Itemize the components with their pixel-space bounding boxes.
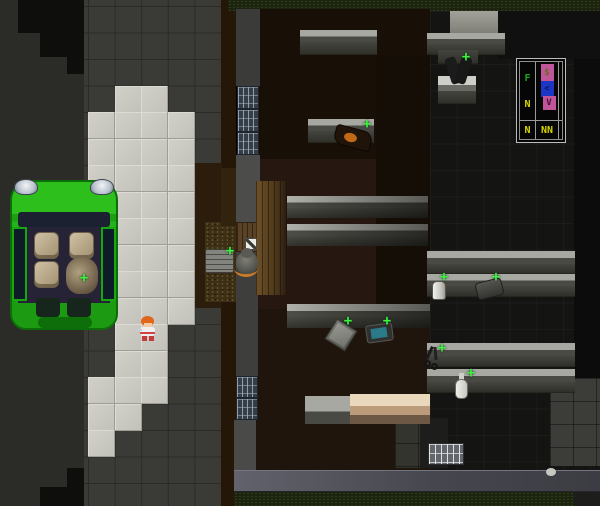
pavement-light-tile [115,298,142,325]
building-corner-dark-se [574,492,600,506]
pavement-light-tile [88,377,115,404]
pavement-light-tile [141,192,168,219]
game-viewport[interactable]: ++++++++++ [0,0,600,506]
car-seat[interactable] [34,232,59,259]
pavement-light-tile [141,351,168,378]
item-small-white[interactable] [546,468,556,476]
shelf-front [300,42,377,55]
car-rear-bumper [38,317,92,328]
zombie-sprite-head[interactable] [241,248,253,258]
item-highlight-plus[interactable]: + [460,51,472,63]
player-leg [149,336,154,341]
shelf-row [427,369,575,382]
minimap-symbol-f: F [524,73,530,84]
minimap-left-column: F N [520,62,536,120]
minimap-symbol-dollar: $ [544,68,549,78]
pavement-light-tile [168,298,195,325]
pavement-light-tile [141,245,168,272]
car-seat[interactable] [69,232,94,259]
minimap-block-pink-top: $ [541,64,554,82]
game-screen: ++++++++++ F N $ < V [0,0,600,506]
pavement-light-tile [141,86,168,113]
pavement-light-tile [115,377,142,404]
item-highlight-plus[interactable]: + [342,315,354,327]
pavement-light-tile [141,112,168,139]
pavement-light-tile [115,112,142,139]
minimap-block-pink-bottom: V [543,96,556,110]
counter-tan [350,394,430,424]
building-floor-dark-strip [376,55,430,310]
window-west [236,376,258,398]
pavement-light-tile [115,351,142,378]
car-trunk-inset [67,298,91,317]
pavement-light-tile [115,245,142,272]
pavement-light-tile [115,86,142,113]
pavement-light-tile [168,218,195,245]
minimap-symbol-n-bottom: N [520,121,536,139]
wall-south [234,470,600,492]
shelf-front [438,91,476,104]
minimap-frame: F N $ < V N NN [519,61,563,140]
pavement-light-tile [115,404,142,431]
item-highlight-plus[interactable]: + [78,272,90,284]
wall-west-bottom [234,420,256,472]
item-highlight-plus[interactable]: + [438,271,450,283]
window-west [237,132,259,155]
item-highlight-plus[interactable]: + [224,245,236,257]
shelf-front [427,356,575,367]
road-dark-patch [40,487,84,506]
pavement-light-tile [88,139,115,166]
zombie-sprite-orange-arc [234,260,258,277]
pavement-light-tile [115,271,142,298]
minimap-symbol-n-mid: N [524,99,530,110]
wall-west-upper [236,9,260,86]
building-dark-north-corner [498,11,600,59]
player-torso[interactable] [140,327,155,336]
window-bright-south [428,443,464,465]
shelf-front-long [287,236,428,246]
window-west [237,86,259,109]
pavement-light-tile [168,139,195,166]
minimap-symbol-v: V [546,98,551,108]
player-sword [134,329,142,331]
dirt-lit-patch [221,168,237,226]
shelf-row [427,33,505,44]
car-seat[interactable] [34,261,59,288]
window-west [236,398,258,420]
item-highlight-plus[interactable]: + [465,367,477,379]
pavement-light-tile [141,271,168,298]
wood-floor-lit [256,181,288,295]
pavement-light-tile [88,404,115,431]
shelf-front [427,382,575,393]
item-highlight-plus[interactable]: + [361,118,373,130]
item-scissors-ring[interactable] [424,360,431,367]
item-highlight-plus[interactable]: + [436,342,448,354]
shelf-row-long [287,304,430,317]
car-door-left[interactable] [12,227,27,301]
minimap-symbol-lt: < [544,84,549,94]
shelf-row [427,343,575,356]
player-leg [142,336,147,341]
pavement-light-tile [168,112,195,139]
item-highlight-plus[interactable]: + [490,271,502,283]
pavement-light-tile [115,192,142,219]
pavement-light-tile [88,112,115,139]
car-windshield [18,212,110,227]
pavement-light-tile [141,377,168,404]
pavement-light-tile [168,192,195,219]
item-scissors-ring[interactable] [431,363,438,370]
item-highlight-plus[interactable]: + [381,315,393,327]
pavement-light-tile [115,165,142,192]
pavement-light-tile [115,139,142,166]
window-west [237,109,259,132]
car-headlight [14,179,38,195]
pavement-light-tile [168,271,195,298]
item-bottle[interactable] [455,379,468,399]
road-dark-patch [40,33,84,57]
road-dark-patch [67,468,84,488]
minimap-bottom-row: N NN [520,120,562,139]
minimap-right-gutter [559,62,562,120]
car-door-right[interactable] [101,227,116,301]
minimap-block-blue: < [541,81,554,97]
pavement-light-tile [141,218,168,245]
shelf-front-long [287,317,430,328]
minimap-bars-column: $ < V [536,62,559,120]
pavement-light-tile [141,165,168,192]
pavement-light-tile [88,430,115,457]
minimap-symbol-nn: NN [536,121,559,139]
shelf-row [427,251,575,264]
road-dark-patch [67,57,84,74]
car-trunk-inset [36,298,60,317]
shelf-row-long [287,196,428,208]
pavement-light-tile [141,139,168,166]
pavement-light-tile [115,218,142,245]
road-dark-patch [18,0,84,33]
grass-south-strip [234,492,600,506]
shelf-row-long [287,224,428,236]
building-dark-east-edge [574,11,600,378]
status-minimap-panel: F N $ < V N NN [516,58,566,143]
minimap-top-section: F N $ < V [520,62,562,120]
car-headlight [90,179,114,195]
pavement-light-tile [168,245,195,272]
concrete-lit-patch [450,11,498,34]
pavement-light-tile [168,165,195,192]
shelf-row [300,30,377,42]
shelf-front-long [287,208,428,218]
